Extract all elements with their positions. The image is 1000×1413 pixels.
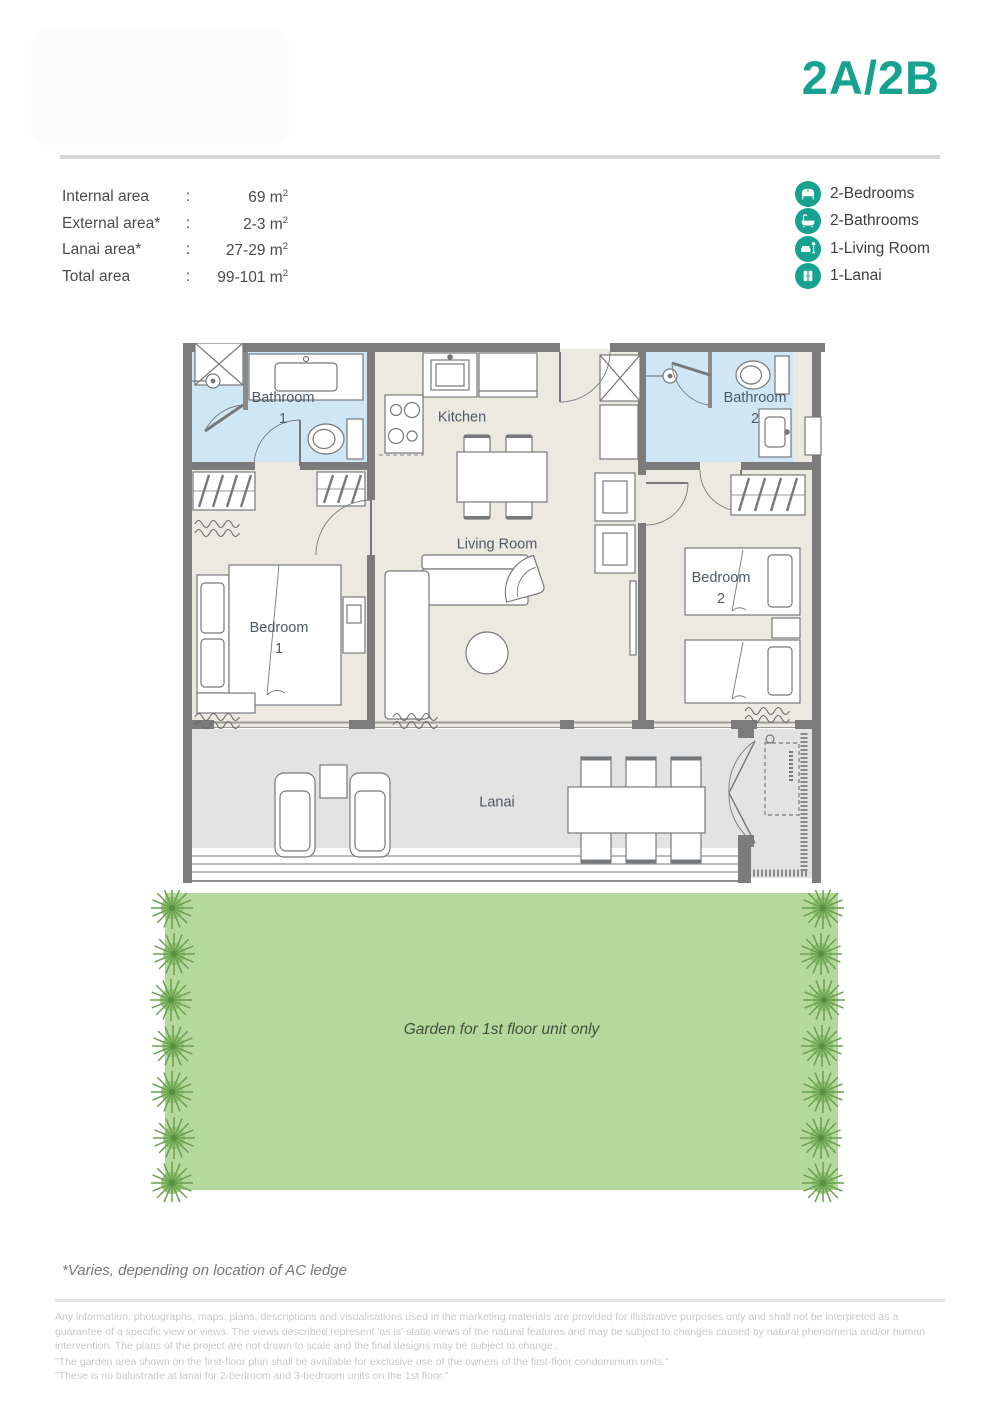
legend-label: 2-Bedrooms xyxy=(830,185,914,203)
area-value: 69 m2 xyxy=(194,188,288,207)
area-colon: : xyxy=(182,215,194,234)
area-value: 99-101 m2 xyxy=(194,268,288,287)
legend-item-lanai: 1-Lanai xyxy=(795,263,930,291)
bathtub-icon xyxy=(795,208,821,234)
area-label: Internal area xyxy=(62,188,182,207)
legend-label: 1-Lanai xyxy=(830,267,882,285)
floor-plan: Bathroom1 Kitchen Bathroom2 Bedroom1 Liv… xyxy=(183,343,825,895)
area-row: Internal area : 69 m2 xyxy=(62,188,288,207)
legend-label: 2-Bathrooms xyxy=(830,212,919,230)
area-row: Lanai area* : 27-29 m2 xyxy=(62,241,288,260)
room-label-lanai: Lanai xyxy=(479,793,514,814)
legend-item-living-room: 1-Living Room xyxy=(795,235,930,263)
balustrade-footnote: "These is no balustrade at lanai for 2-b… xyxy=(55,1370,947,1382)
brochure-page: 2A/2B Internal area : 69 m2 External are… xyxy=(0,0,1000,1413)
area-value: 27-29 m2 xyxy=(194,241,288,260)
legend-item-bathrooms: 2-Bathrooms xyxy=(795,208,930,236)
disclaimer-text: Any information, photographs, maps, plan… xyxy=(55,1310,947,1354)
logo-watermark xyxy=(30,28,290,146)
room-label-kitchen: Kitchen xyxy=(438,408,486,429)
bed-icon xyxy=(795,181,821,207)
garden-footnote: "The garden area shown on the first-floo… xyxy=(55,1356,947,1368)
area-row: Total area : 99-101 m2 xyxy=(62,268,288,287)
area-row: External area* : 2-3 m2 xyxy=(62,215,288,234)
garden-trees xyxy=(140,890,860,1202)
area-colon: : xyxy=(182,241,194,260)
room-label-bathroom-2: Bathroom2 xyxy=(724,388,787,430)
footer-divider xyxy=(55,1299,945,1302)
sofa-icon xyxy=(795,236,821,262)
area-label: Lanai area* xyxy=(62,241,182,260)
legend: 2-Bedrooms 2-Bathrooms 1-Living Room 1-L… xyxy=(795,180,930,290)
room-label-bedroom-1: Bedroom1 xyxy=(250,618,309,660)
legend-item-bedrooms: 2-Bedrooms xyxy=(795,180,930,208)
door-icon xyxy=(795,263,821,289)
room-label-bedroom-2: Bedroom2 xyxy=(692,568,751,610)
page-title: 2A/2B xyxy=(802,50,940,105)
room-label-living-room: Living Room xyxy=(457,535,538,556)
area-value: 2-3 m2 xyxy=(194,215,288,234)
area-table: Internal area : 69 m2 External area* : 2… xyxy=(62,188,288,295)
footnote-varies: *Varies, depending on location of AC led… xyxy=(62,1262,347,1279)
area-colon: : xyxy=(182,268,194,287)
area-colon: : xyxy=(182,188,194,207)
area-label: Total area xyxy=(62,268,182,287)
legend-label: 1-Living Room xyxy=(830,240,930,258)
room-label-bathroom-1: Bathroom1 xyxy=(252,388,315,430)
area-label: External area* xyxy=(62,215,182,234)
header-divider xyxy=(60,155,940,159)
